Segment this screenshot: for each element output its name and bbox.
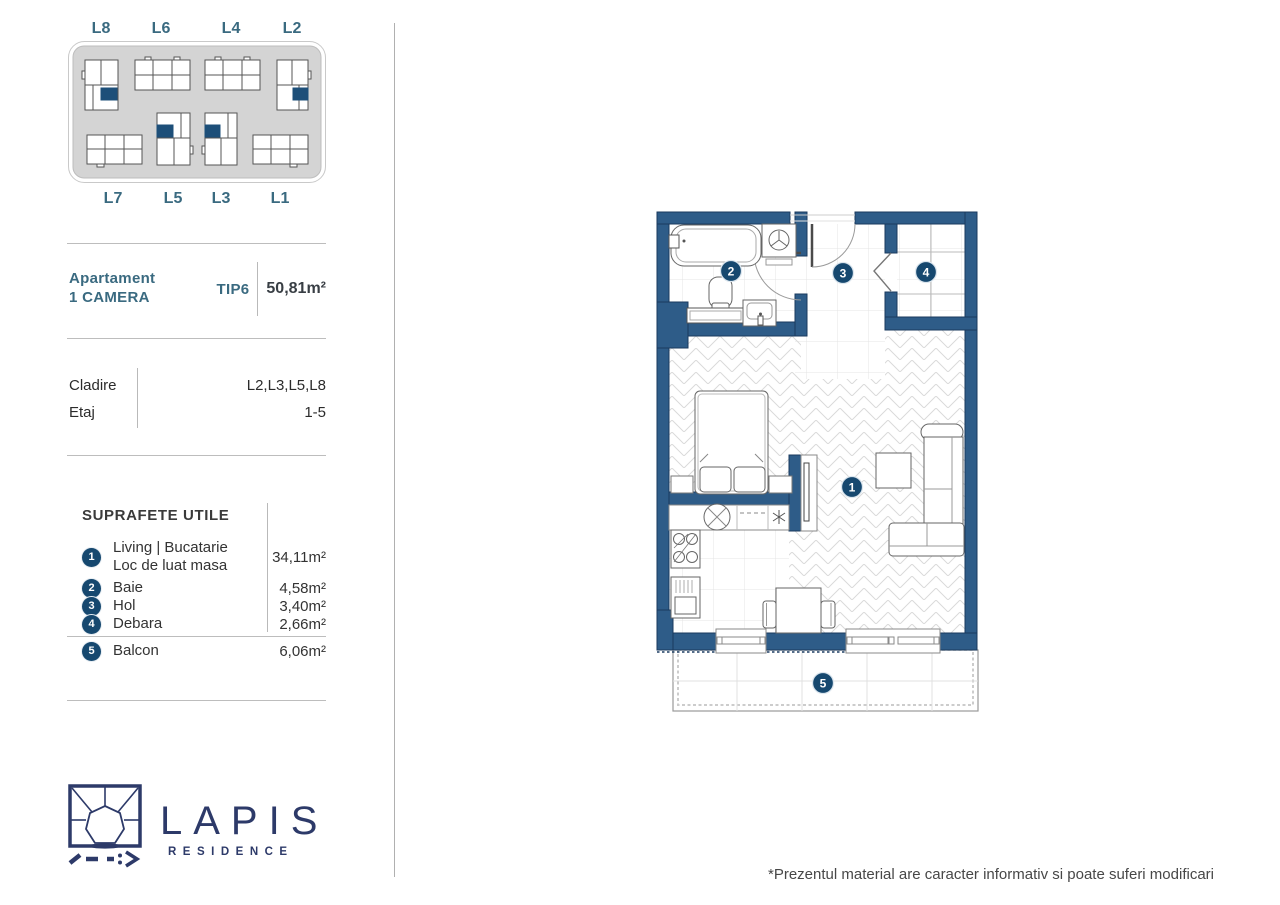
- marker-1: 1: [842, 477, 863, 498]
- site-plan: [68, 41, 326, 185]
- room-area: 3,40m²: [279, 598, 326, 615]
- site-building-l3: [202, 113, 237, 165]
- room-label-line2: Loc de luat masa: [113, 557, 227, 574]
- bathroom-sink: [743, 300, 776, 326]
- lapis-logo-icon: [64, 780, 150, 872]
- divider: [67, 700, 326, 701]
- apartment-title-line1: Apartament: [69, 269, 155, 288]
- suprafete-list: 1 Living | Bucatarie Loc de luat masa 34…: [82, 539, 326, 633]
- suprafete-heading: SUPRAFETE UTILE: [82, 507, 229, 524]
- cladire-value: L2,L3,L5,L8: [247, 377, 326, 394]
- disclaimer-text: *Prezentul material are caracter informa…: [768, 866, 1214, 883]
- room-area: 2,66m²: [279, 616, 326, 633]
- marker-4: 4: [916, 262, 937, 283]
- room-badge-5: 5: [82, 642, 101, 661]
- floorplan-sheet: { "site_plan": { "top_labels": ["L8", "L…: [0, 0, 1280, 905]
- nightstand: [769, 476, 792, 493]
- divider: [137, 368, 138, 428]
- marker-5: 5: [813, 673, 834, 694]
- washing-machine: [762, 224, 796, 265]
- brand-name: LAPIS: [160, 799, 328, 844]
- building-label-l8: L8: [92, 20, 111, 38]
- site-building-l1: [253, 135, 308, 167]
- type-area-group: TIP6 50,81m²: [217, 262, 326, 316]
- list-item: 4 Debara 2,66m²: [82, 615, 326, 633]
- building-label-l2: L2: [283, 20, 302, 38]
- marker-2: 2: [721, 261, 742, 282]
- divider: [67, 243, 326, 244]
- room-label: Living | Bucatarie Loc de luat masa: [113, 539, 228, 575]
- room-label: Hol: [113, 597, 136, 615]
- building-label-l1: L1: [271, 190, 290, 208]
- brand-subtitle: RESIDENCE: [168, 846, 294, 858]
- building-label-l7: L7: [104, 190, 123, 208]
- etaj-value: 1-5: [304, 404, 326, 421]
- site-building-l2: [277, 60, 311, 110]
- apartment-total-area: 50,81m²: [266, 280, 326, 298]
- apartment-type: TIP6: [217, 281, 250, 298]
- list-item: 2 Baie 4,58m²: [82, 579, 326, 597]
- kitchen-counter: [669, 504, 789, 530]
- nightstand: [671, 476, 693, 493]
- cladire-label: Cladire: [69, 377, 117, 394]
- bathtub: [669, 225, 761, 266]
- divider: [67, 338, 326, 339]
- floor-plan: 1 2 3 4 5: [650, 205, 985, 720]
- window: [716, 629, 766, 653]
- room-label: Balcon: [113, 642, 159, 660]
- building-label-l5: L5: [164, 190, 183, 208]
- building-label-l3: L3: [212, 190, 231, 208]
- list-item: 3 Hol 3,40m²: [82, 597, 326, 615]
- building-label-l4: L4: [222, 20, 241, 38]
- svg-text:2: 2: [728, 265, 735, 279]
- marker-3: 3: [833, 263, 854, 284]
- tv-unit: [801, 455, 817, 531]
- room-badge-1: 1: [82, 548, 101, 567]
- site-building-l8: [82, 60, 118, 110]
- main-vertical-divider: [394, 23, 395, 877]
- window: [846, 629, 940, 653]
- coffee-table: [876, 453, 911, 488]
- stove: [671, 530, 700, 568]
- building-label-l6: L6: [152, 20, 171, 38]
- room-area: 4,58m²: [279, 580, 326, 597]
- bed: [695, 391, 768, 494]
- apartment-title: Apartament 1 CAMERA: [69, 269, 155, 307]
- bathroom-vanity: [687, 308, 744, 323]
- divider: [67, 636, 326, 637]
- room-label: Debara: [113, 615, 162, 633]
- room-badge-3: 3: [82, 597, 101, 616]
- site-building-l5: [157, 113, 193, 165]
- svg-text:3: 3: [840, 267, 847, 281]
- room-label-line1: Living | Bucatarie: [113, 539, 228, 556]
- svg-text:5: 5: [820, 677, 827, 691]
- svg-text:4: 4: [923, 266, 930, 280]
- etaj-label: Etaj: [69, 404, 95, 421]
- site-building-l7: [87, 135, 142, 167]
- divider: [67, 455, 326, 456]
- list-item: 5 Balcon 6,06m²: [82, 642, 326, 660]
- etaj-row: Etaj 1-5: [69, 404, 326, 421]
- room-label: Baie: [113, 579, 143, 597]
- hall-floor: [795, 224, 885, 379]
- site-building-l6: [135, 57, 190, 90]
- apartment-title-line2: 1 CAMERA: [69, 288, 155, 307]
- site-building-l4: [205, 57, 260, 90]
- divider: [257, 262, 258, 316]
- fridge: [671, 577, 700, 618]
- svg-text:1: 1: [849, 481, 856, 495]
- list-item: 1 Living | Bucatarie Loc de luat masa 34…: [82, 539, 326, 575]
- room-area: 6,06m²: [279, 643, 326, 660]
- cladire-row: Cladire L2,L3,L5,L8: [69, 377, 326, 394]
- room-badge-2: 2: [82, 579, 101, 598]
- room-badge-4: 4: [82, 615, 101, 634]
- room-area: 34,11m²: [272, 549, 326, 566]
